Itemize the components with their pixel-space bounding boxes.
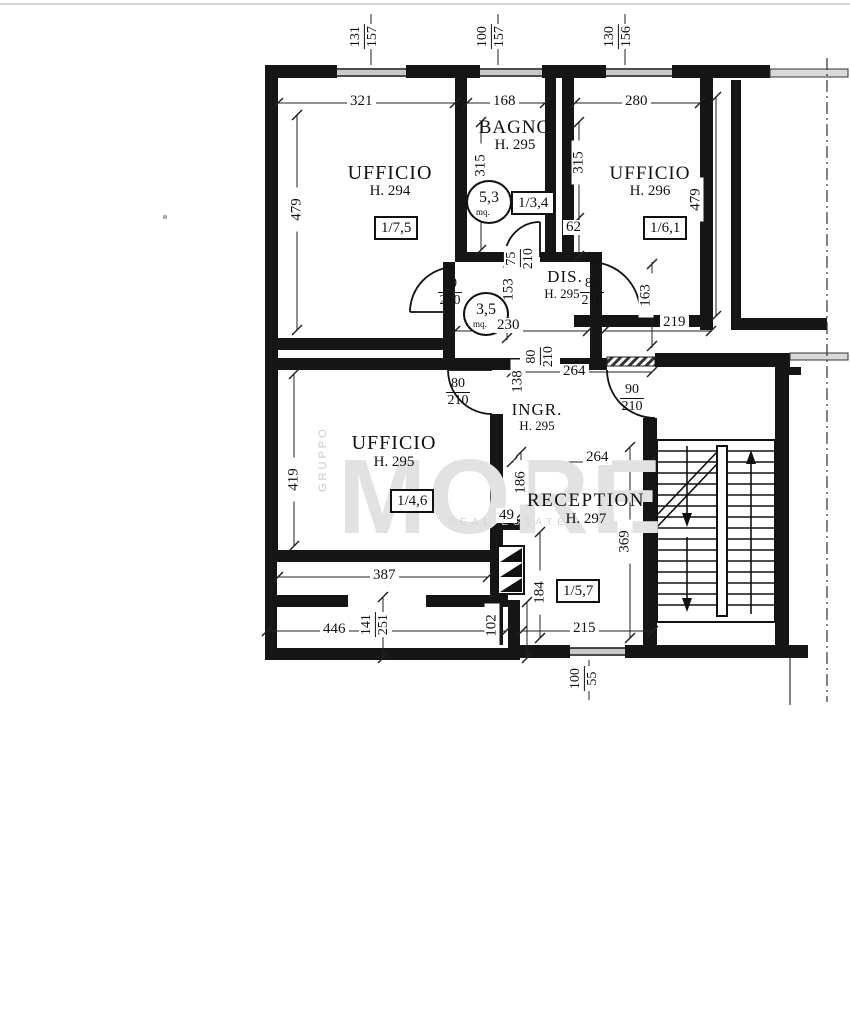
dim-280: 280 (622, 94, 651, 109)
dim-264-ingr: 264 (560, 364, 589, 379)
room-ingr-label: INGR. (506, 401, 568, 418)
dim-215: 215 (570, 621, 599, 636)
dim-ingr-door: 80210 (446, 376, 470, 409)
dim-387: 387 (370, 568, 399, 583)
dim-dis-door-right: 80210 (580, 276, 604, 309)
dim-168: 168 (490, 94, 519, 109)
room-reception-ref: 1/5,7 (556, 579, 600, 603)
dim-bagno-door: 75210 (504, 246, 537, 271)
room-ufficio-294-height: H. 294 (330, 184, 450, 199)
dim-446: 446 (320, 622, 349, 637)
dim-138: 138 (511, 360, 526, 404)
watermark-gruppo: GRUPPO (318, 426, 329, 492)
dim-321: 321 (347, 94, 376, 109)
staircase (657, 440, 775, 622)
property-line (790, 58, 827, 705)
dim-264-reception: 264 (583, 450, 612, 465)
dim-window1: 131157 (348, 24, 381, 49)
dim-passage: 80210 (524, 344, 557, 369)
room-ufficio-296-height: H. 296 (598, 184, 702, 199)
dim-102: 102 (485, 604, 500, 648)
room-ufficio-295-label: UFFICIO (334, 433, 454, 453)
room-ufficio-296-label: UFFICIO (598, 164, 702, 183)
dim-window4: 10055 (568, 666, 601, 691)
room-bagno-label: BAGNO (450, 118, 580, 137)
room-bagno-height: H. 295 (450, 138, 580, 153)
room-bagno-ref: 1/3,4 (511, 191, 555, 215)
dim-219: 219 (660, 315, 689, 330)
room-reception-label: RECEPTION (523, 491, 649, 510)
dim-186: 186 (514, 461, 529, 505)
room-ufficio-294-ref: 1/7,5 (374, 216, 418, 240)
dim-184: 184 (533, 571, 548, 615)
dim-window2: 100157 (475, 24, 508, 49)
dim-369: 369 (618, 520, 633, 564)
room-ufficio-294-label: UFFICIO (330, 163, 450, 183)
dim-62: 62 (563, 220, 584, 235)
dim-163: 163 (639, 274, 654, 318)
room-bagno-area-circle: 5,3mq. (466, 180, 512, 224)
dim-49: 49 (496, 508, 517, 523)
room-ingr-height: H. 295 (506, 419, 568, 432)
dim-window3: 130156 (602, 24, 635, 49)
room-ufficio-295-height: H. 295 (334, 455, 454, 470)
dim-141-251: 141251 (359, 612, 392, 637)
room-ufficio-295-ref: 1/4,6 (390, 489, 434, 513)
dim-479-left: 479 (290, 188, 305, 232)
dim-419: 419 (287, 458, 302, 502)
floor-plan-page: GRUPPO MORE REAL ESTATE (0, 0, 850, 1023)
dim-entry-door: 90210 (620, 382, 644, 415)
dim-230: 230 (494, 318, 523, 333)
dim-dis-door-left: 80210 (438, 276, 462, 309)
room-ufficio-296-ref: 1/6,1 (643, 216, 687, 240)
